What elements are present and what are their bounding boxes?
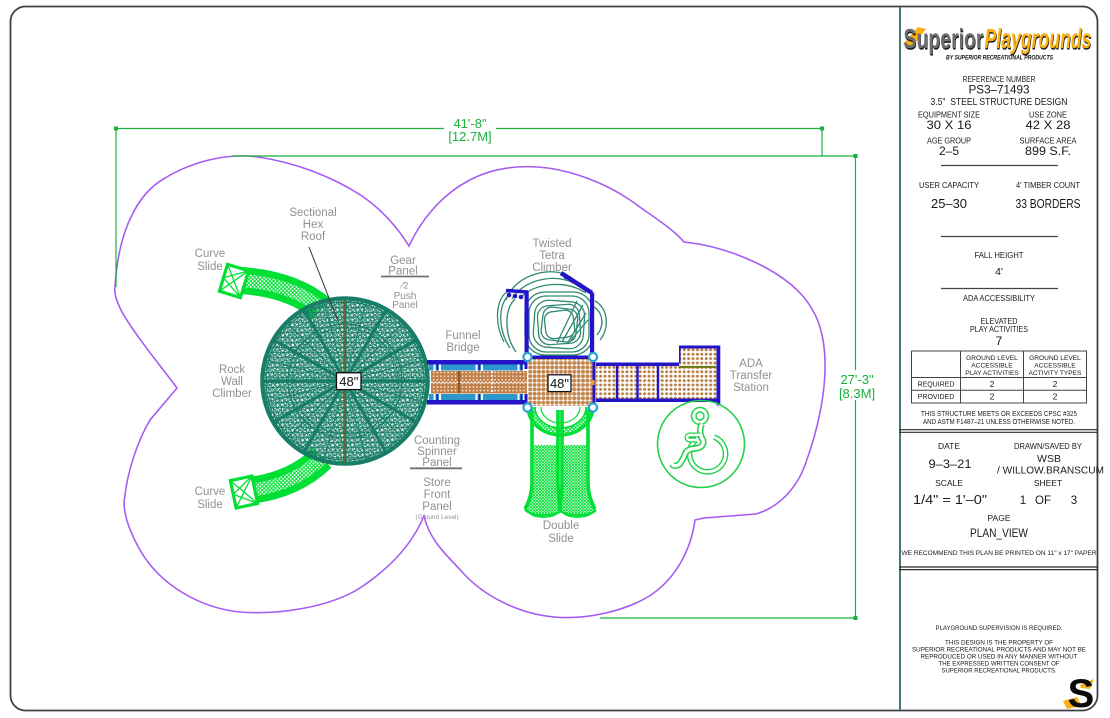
- svg-text:9–3–21: 9–3–21: [929, 457, 972, 471]
- svg-text:Slide: Slide: [197, 499, 223, 511]
- svg-text:Roof: Roof: [301, 231, 326, 243]
- svg-text:THE EXPRESSED WRITTEN CONSENT: THE EXPRESSED WRITTEN CONSENT OF: [939, 661, 1060, 668]
- svg-text:7: 7: [996, 334, 1003, 348]
- svg-text:4' TIMBER COUNT: 4' TIMBER COUNT: [1016, 180, 1080, 190]
- svg-text:Climber: Climber: [532, 262, 572, 274]
- svg-text:PS3–71493: PS3–71493: [969, 83, 1030, 97]
- svg-text:Curve: Curve: [195, 248, 226, 260]
- svg-text:1/4" = 1'–0": 1/4" = 1'–0": [913, 493, 987, 507]
- svg-text:THIS DESIGN IS THE PROPERTY OF: THIS DESIGN IS THE PROPERTY OF: [945, 640, 1053, 647]
- svg-text:Rock: Rock: [219, 364, 245, 376]
- svg-text:25–30: 25–30: [931, 197, 967, 211]
- svg-text:GROUND LEVEL: GROUND LEVEL: [966, 355, 1018, 362]
- svg-text:PLAY ACTIVITIES: PLAY ACTIVITIES: [965, 370, 1019, 377]
- svg-text:SUPERIOR RECREATIONAL PRODUCTS: SUPERIOR RECREATIONAL PRODUCTS AND MAY N…: [912, 647, 1086, 654]
- svg-text:2–5: 2–5: [939, 144, 959, 158]
- svg-text:Wall: Wall: [221, 376, 243, 388]
- svg-text:ADA ACCESSIBILITY: ADA ACCESSIBILITY: [963, 293, 1035, 303]
- svg-text:DATE: DATE: [938, 441, 960, 451]
- svg-text:SCALE: SCALE: [935, 478, 963, 488]
- svg-text:Slide: Slide: [197, 261, 223, 273]
- svg-text:REQUIRED: REQUIRED: [918, 382, 955, 389]
- svg-text:ACCESSIBLE: ACCESSIBLE: [971, 363, 1013, 370]
- svg-text:48": 48": [550, 376, 569, 391]
- svg-text:Playgrounds: Playgrounds: [985, 23, 1092, 54]
- svg-text:27'-3": 27'-3": [840, 372, 874, 387]
- svg-text:Front: Front: [424, 489, 452, 501]
- svg-text:ACTIVITY TYPES: ACTIVITY TYPES: [1029, 370, 1082, 377]
- svg-text:SUPERIOR RECREATIONAL PRODUCTS: SUPERIOR RECREATIONAL PRODUCTS.: [942, 668, 1057, 675]
- svg-text:[8.3M]: [8.3M]: [839, 386, 875, 401]
- svg-text:Twisted: Twisted: [533, 238, 572, 250]
- svg-text:OF: OF: [1035, 495, 1051, 507]
- svg-text:Tetra: Tetra: [539, 250, 565, 262]
- svg-text:Hex: Hex: [303, 219, 324, 231]
- svg-text:1: 1: [1020, 495, 1026, 507]
- svg-text:Panel: Panel: [422, 457, 451, 469]
- svg-text:2: 2: [990, 392, 995, 402]
- svg-text:Store: Store: [423, 477, 451, 489]
- svg-text:2: 2: [1053, 392, 1058, 402]
- svg-text:Climber: Climber: [212, 388, 252, 400]
- svg-text:⁄2: ⁄2: [400, 281, 409, 291]
- svg-text:[12.7M]: [12.7M]: [448, 129, 491, 144]
- svg-text:Bridge: Bridge: [446, 342, 479, 354]
- svg-text:33 BORDERS: 33 BORDERS: [1016, 197, 1081, 211]
- svg-text:GROUND LEVEL: GROUND LEVEL: [1029, 355, 1081, 362]
- svg-text:USER CAPACITY: USER CAPACITY: [919, 180, 979, 190]
- svg-text:(Ground Level): (Ground Level): [415, 514, 458, 521]
- svg-text:2: 2: [1053, 379, 1058, 389]
- svg-text:BY SUPERIOR RECREATIONAL PRODU: BY SUPERIOR RECREATIONAL PRODUCTS: [946, 55, 1054, 62]
- svg-text:48": 48": [339, 374, 358, 389]
- svg-text:Curve: Curve: [195, 486, 226, 498]
- svg-text:3.5" STEEL STRUCTURE DESIGN: 3.5" STEEL STRUCTURE DESIGN: [931, 96, 1068, 108]
- svg-text:Panel: Panel: [422, 501, 451, 513]
- svg-text:WE RECOMMEND THIS PLAN BE PRIN: WE RECOMMEND THIS PLAN BE PRINTED ON 11"…: [902, 550, 1097, 557]
- svg-text:Superior: Superior: [904, 23, 984, 54]
- svg-text:Transfer: Transfer: [730, 370, 773, 382]
- svg-text:4': 4': [995, 266, 1003, 278]
- svg-text:Double: Double: [543, 520, 579, 532]
- svg-text:S: S: [1068, 672, 1095, 716]
- svg-text:Sectional: Sectional: [289, 207, 336, 219]
- svg-text:Slide: Slide: [548, 533, 574, 545]
- svg-text:WSB: WSB: [1037, 453, 1061, 465]
- svg-text:3: 3: [1071, 495, 1077, 507]
- svg-text:SHEET: SHEET: [1034, 478, 1062, 488]
- svg-text:REPRODUCED OR USED IN ANY MANN: REPRODUCED OR USED IN ANY MANNER WITHOUT: [921, 654, 1078, 661]
- svg-text:ACCESSIBLE: ACCESSIBLE: [1034, 363, 1076, 370]
- svg-text:Panel: Panel: [392, 300, 418, 311]
- svg-text:PROVIDED: PROVIDED: [918, 394, 955, 401]
- svg-text:THIS STRUCTURE MEETS OR EXCEED: THIS STRUCTURE MEETS OR EXCEEDS CPSC #32…: [921, 411, 1077, 418]
- svg-text:PLAN_VIEW: PLAN_VIEW: [970, 526, 1029, 540]
- svg-text:AND ASTM F1487–21 UNLESS OTHER: AND ASTM F1487–21 UNLESS OTHERWISE NOTED…: [923, 419, 1075, 426]
- svg-text:FALL HEIGHT: FALL HEIGHT: [975, 250, 1024, 260]
- svg-text:Funnel: Funnel: [445, 330, 480, 342]
- svg-text:PAGE: PAGE: [988, 513, 1011, 523]
- svg-text:Station: Station: [733, 382, 769, 394]
- svg-text:/ WILLOW.BRANSCUM: / WILLOW.BRANSCUM: [997, 465, 1104, 477]
- svg-text:30 X 16: 30 X 16: [927, 118, 972, 132]
- svg-text:899 S.F.: 899 S.F.: [1025, 144, 1071, 158]
- svg-text:2: 2: [990, 379, 995, 389]
- svg-text:PLAYGROUND SUPERVISION IS REQU: PLAYGROUND SUPERVISION IS REQUIRED.: [936, 625, 1063, 632]
- svg-text:ADA: ADA: [739, 358, 763, 370]
- svg-text:42 X 28: 42 X 28: [1026, 118, 1071, 132]
- svg-text:DRAWN/SAVED BY: DRAWN/SAVED BY: [1014, 441, 1082, 451]
- svg-text:PLAY ACTIVITIES: PLAY ACTIVITIES: [970, 324, 1028, 334]
